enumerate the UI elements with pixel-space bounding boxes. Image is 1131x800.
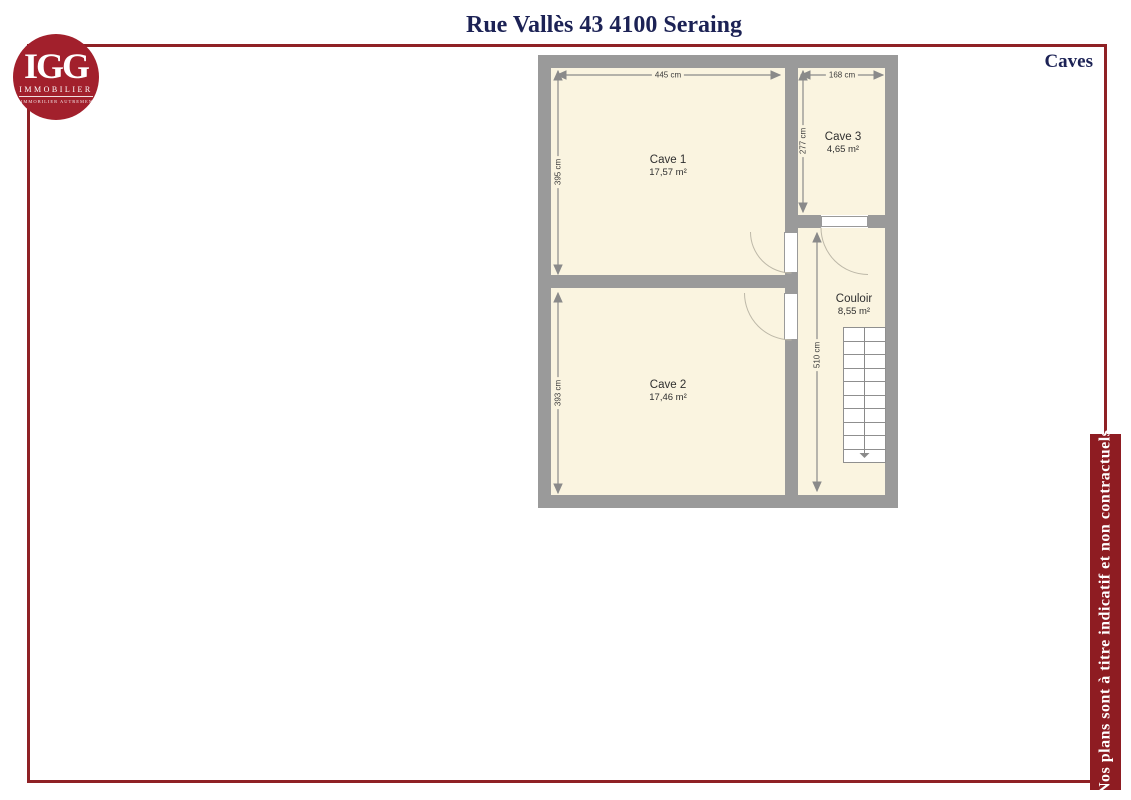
wall-middle-upper bbox=[785, 55, 798, 232]
stair-tread bbox=[844, 396, 885, 410]
room-name: Cave 2 bbox=[649, 379, 687, 392]
wall-right bbox=[885, 55, 898, 508]
door-cave1-couloir bbox=[784, 232, 798, 273]
logo-tagline-text: L'IMMOBILIER AUTREMENT bbox=[15, 99, 96, 104]
stair-tread bbox=[844, 382, 885, 396]
room-label-cave-3: Cave 3 4,65 m² bbox=[825, 131, 861, 155]
logo-brand-text: IGG bbox=[24, 51, 88, 81]
room-area: 17,57 m² bbox=[649, 167, 687, 178]
room-label-cave-2: Cave 2 17,46 m² bbox=[649, 379, 687, 403]
stair-tread bbox=[844, 450, 885, 463]
wall-top bbox=[538, 55, 898, 68]
stairs bbox=[843, 327, 886, 463]
stair-tread bbox=[844, 409, 885, 423]
wall-cave3-left bbox=[798, 215, 821, 228]
door-cave2-couloir bbox=[784, 293, 798, 340]
stair-tread bbox=[844, 355, 885, 369]
door-cave3-couloir bbox=[821, 216, 868, 227]
room-label-cave-1: Cave 1 17,57 m² bbox=[649, 154, 687, 178]
wall-cave3-right bbox=[868, 215, 885, 228]
room-name: Cave 3 bbox=[825, 131, 861, 144]
room-area: 4,65 m² bbox=[825, 144, 861, 155]
floor-name-label: Caves bbox=[1044, 51, 1093, 73]
room-name: Couloir bbox=[836, 293, 872, 306]
dim-label-cave1-width: 445 cm bbox=[652, 71, 684, 80]
wall-bottom bbox=[538, 495, 898, 508]
wall-middle-lower bbox=[785, 340, 798, 508]
dim-label-cave3-height: 277 cm bbox=[799, 125, 808, 157]
room-area: 17,46 m² bbox=[649, 392, 687, 403]
page-title: Rue Vallès 43 4100 Seraing bbox=[100, 12, 1108, 39]
stair-tread bbox=[844, 328, 885, 342]
agency-logo: IGG IMMOBILIER L'IMMOBILIER AUTREMENT bbox=[13, 34, 99, 120]
room-name: Cave 1 bbox=[649, 154, 687, 167]
page: { "header": { "title": "Rue Vallès 43 41… bbox=[0, 0, 1131, 800]
dim-label-cave1-height: 395 cm bbox=[554, 156, 563, 188]
disclaimer-banner: Nos plans sont à titre indicatif et non … bbox=[1090, 434, 1121, 790]
stair-tread bbox=[844, 369, 885, 383]
stair-tread bbox=[844, 342, 885, 356]
floor-plan: Cave 1 17,57 m² Cave 2 17,46 m² Cave 3 4… bbox=[538, 55, 898, 508]
wall-cave1-cave2 bbox=[538, 275, 798, 288]
dim-label-cave3-width: 168 cm bbox=[826, 71, 858, 80]
dim-label-couloir-height: 510 cm bbox=[813, 339, 822, 371]
dim-label-cave2-height: 393 cm bbox=[554, 377, 563, 409]
logo-subtitle-text: IMMOBILIER bbox=[19, 85, 92, 97]
stair-tread bbox=[844, 436, 885, 450]
room-area: 8,55 m² bbox=[836, 306, 872, 317]
room-label-couloir: Couloir 8,55 m² bbox=[836, 293, 872, 317]
stair-tread bbox=[844, 423, 885, 437]
